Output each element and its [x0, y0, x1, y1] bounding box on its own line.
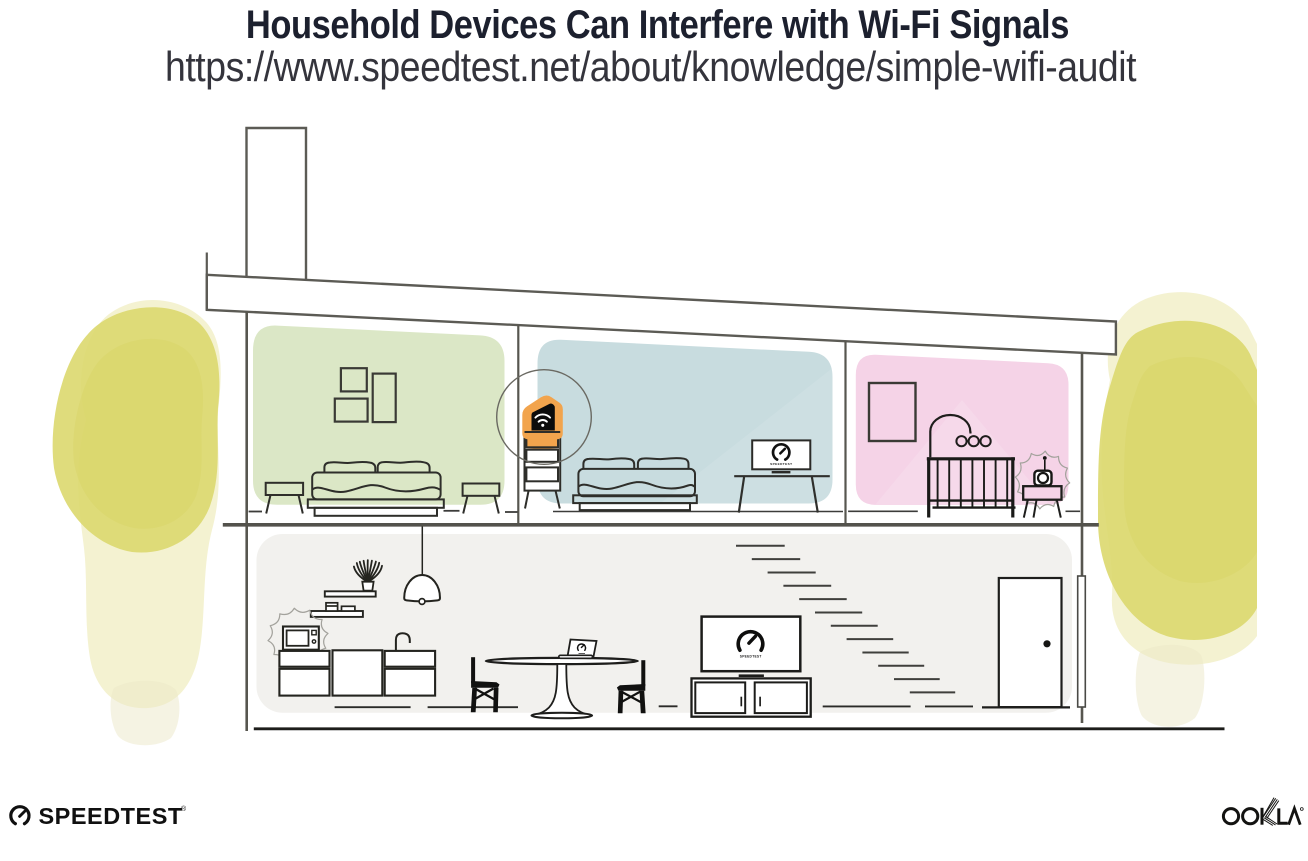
svg-text:®: ®: [181, 805, 187, 813]
svg-text:SPEEDTEST: SPEEDTEST: [740, 654, 762, 658]
svg-text:SPEEDTEST: SPEEDTEST: [770, 462, 792, 466]
svg-text:SPEEDTEST: SPEEDTEST: [39, 803, 183, 829]
